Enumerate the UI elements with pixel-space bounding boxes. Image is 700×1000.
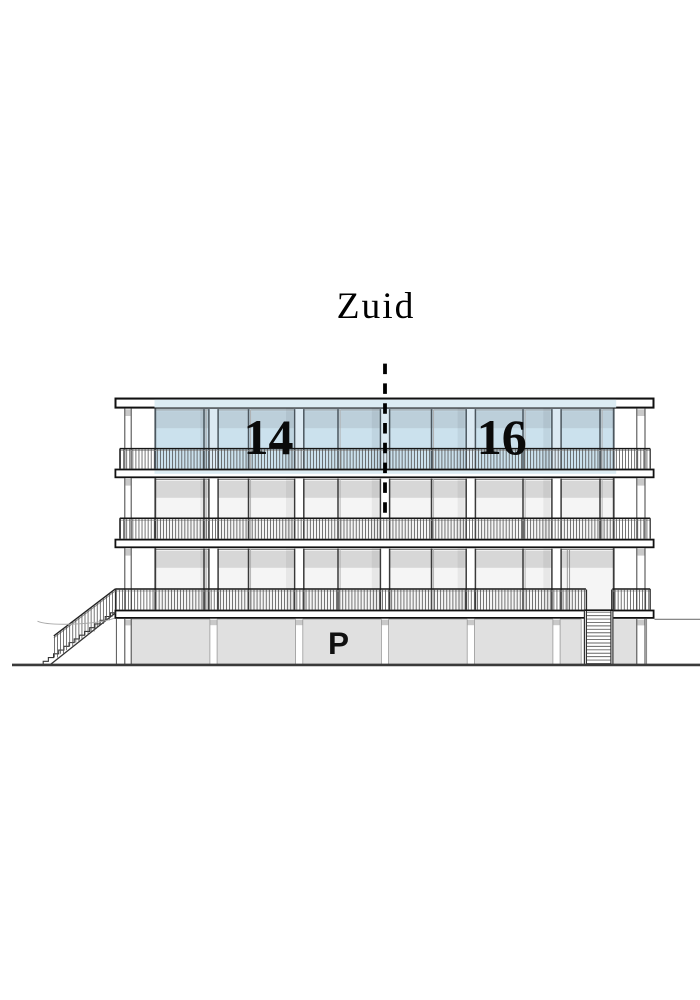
svg-text:14: 14 bbox=[244, 409, 294, 465]
svg-text:P: P bbox=[328, 625, 349, 661]
svg-text:16: 16 bbox=[477, 409, 527, 465]
svg-text:Zuid: Zuid bbox=[337, 286, 416, 327]
